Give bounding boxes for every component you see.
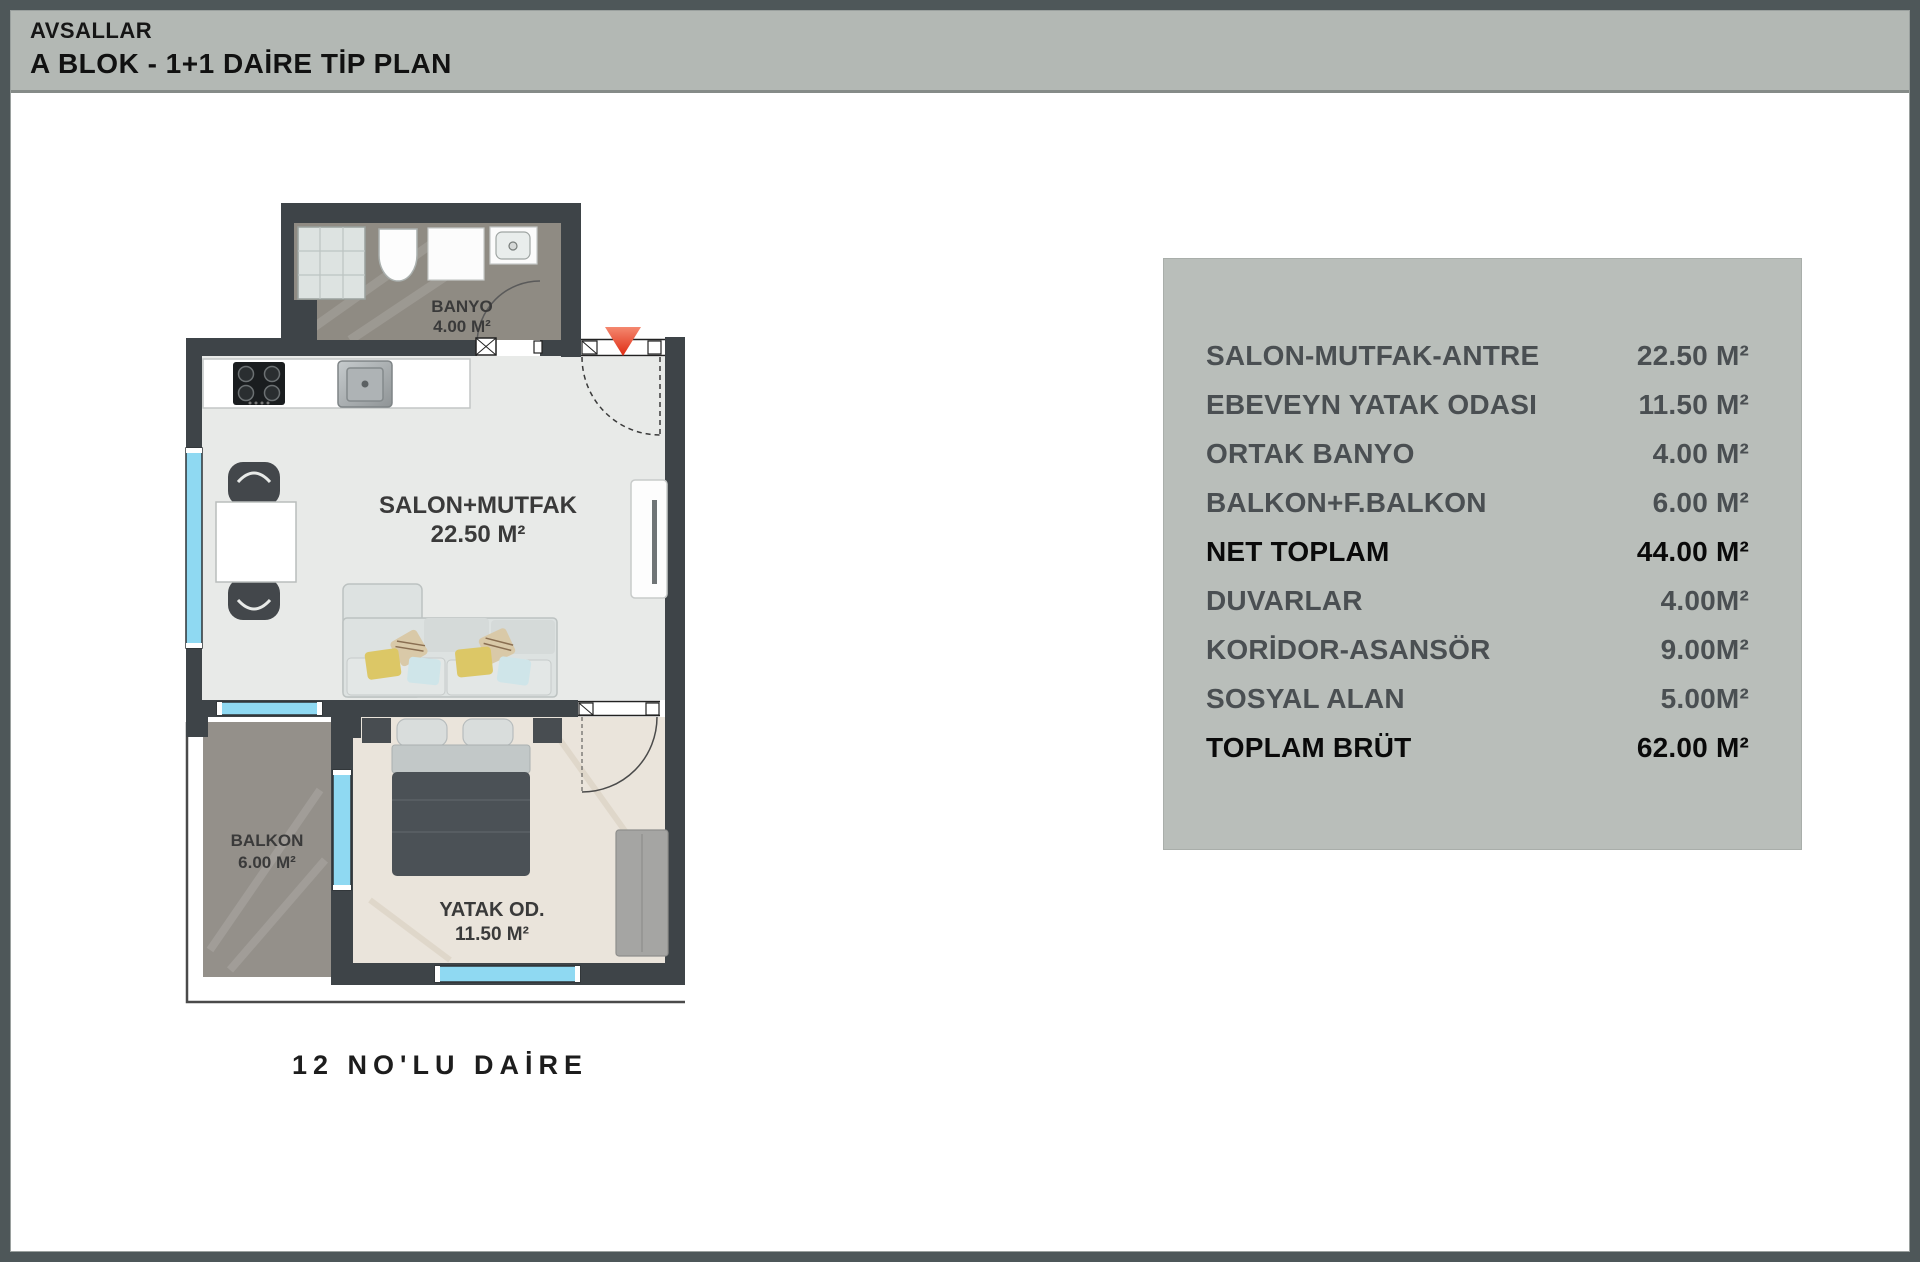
table-row: EBEVEYN YATAK ODASI 11.50 M² [1164,380,1801,429]
bed-pillow [463,719,513,746]
salon-label: SALON+MUTFAK [379,492,578,519]
row-label: BALKON+F.BALKON [1206,487,1487,519]
washer-icon [428,228,484,280]
bed-pillow [397,719,447,746]
project-name: AVSALLAR [30,18,152,44]
balcony-door-window [217,702,322,715]
row-value: 11.50 M² [1638,389,1749,421]
balcony-bedroom-window [333,770,351,890]
row-value: 4.00 M² [1653,438,1749,470]
kitchen [203,359,470,408]
row-value: 4.00M² [1661,585,1749,617]
table-row: BALKON+F.BALKON 6.00 M² [1164,478,1801,527]
table-row: KORİDOR-ASANSÖR 9.00M² [1164,625,1801,674]
closet-icon [631,480,667,598]
nightstand [533,718,562,743]
row-value: 6.00 M² [1653,487,1749,519]
banyo-label: BANYO [431,297,492,316]
page-title: A BLOK - 1+1 DAİRE TİP PLAN [30,48,452,80]
stove-icon [233,362,285,405]
row-label: SOSYAL ALAN [1206,683,1405,715]
area-table-panel: SALON-MUTFAK-ANTRE 22.50 M² EBEVEYN YATA… [1163,258,1802,850]
row-label: ORTAK BANYO [1206,438,1415,470]
bedroom-window [435,966,580,982]
row-value: 9.00M² [1661,634,1749,666]
row-label: EBEVEYN YATAK ODASI [1206,389,1537,421]
area-table-rows: SALON-MUTFAK-ANTRE 22.50 M² EBEVEYN YATA… [1164,331,1801,772]
row-value: 5.00M² [1661,683,1749,715]
row-label: TOPLAM BRÜT [1206,732,1411,764]
yatak-label: YATAK OD. [439,899,544,921]
balkon-area: 6.00 M² [238,853,296,872]
table-row: ORTAK BANYO 4.00 M² [1164,429,1801,478]
table-row: SALON-MUTFAK-ANTRE 22.50 M² [1164,331,1801,380]
salon-area: 22.50 M² [431,521,526,548]
dining-table [216,502,296,582]
row-value: 22.50 M² [1637,340,1749,372]
banyo-area: 4.00 M² [433,317,491,336]
bed-duvet [392,772,530,876]
shower-icon [298,227,365,299]
chair-icon [228,578,280,620]
salon-window [186,448,202,648]
table-row-net-total: NET TOPLAM 44.00 M² [1164,527,1801,576]
row-label: SALON-MUTFAK-ANTRE [1206,340,1539,372]
chair-icon [228,462,280,506]
row-value: 44.00 M² [1637,536,1749,568]
table-row: DUVARLAR 4.00M² [1164,576,1801,625]
floor-plan: BANYO 4.00 M² SALON+MUTFAK 22.50 M² BALK… [150,180,720,1020]
nightstand [362,718,391,743]
yatak-area: 11.50 M² [455,924,529,945]
balkon-label: BALKON [231,831,304,850]
row-label: NET TOPLAM [1206,536,1389,568]
table-row-gross-total: TOPLAM BRÜT 62.00 M² [1164,723,1801,772]
wardrobe-icon [616,830,668,956]
row-label: KORİDOR-ASANSÖR [1206,634,1491,666]
table-row: SOSYAL ALAN 5.00M² [1164,674,1801,723]
unit-number-label: 12 NO'LU DAİRE [250,1050,630,1081]
toilet-icon [379,229,417,281]
row-value: 62.00 M² [1637,732,1749,764]
kitchen-sink-icon [338,361,392,407]
header-band: AVSALLAR A BLOK - 1+1 DAİRE TİP PLAN [10,10,1910,93]
sink-icon [490,227,537,264]
row-label: DUVARLAR [1206,585,1363,617]
